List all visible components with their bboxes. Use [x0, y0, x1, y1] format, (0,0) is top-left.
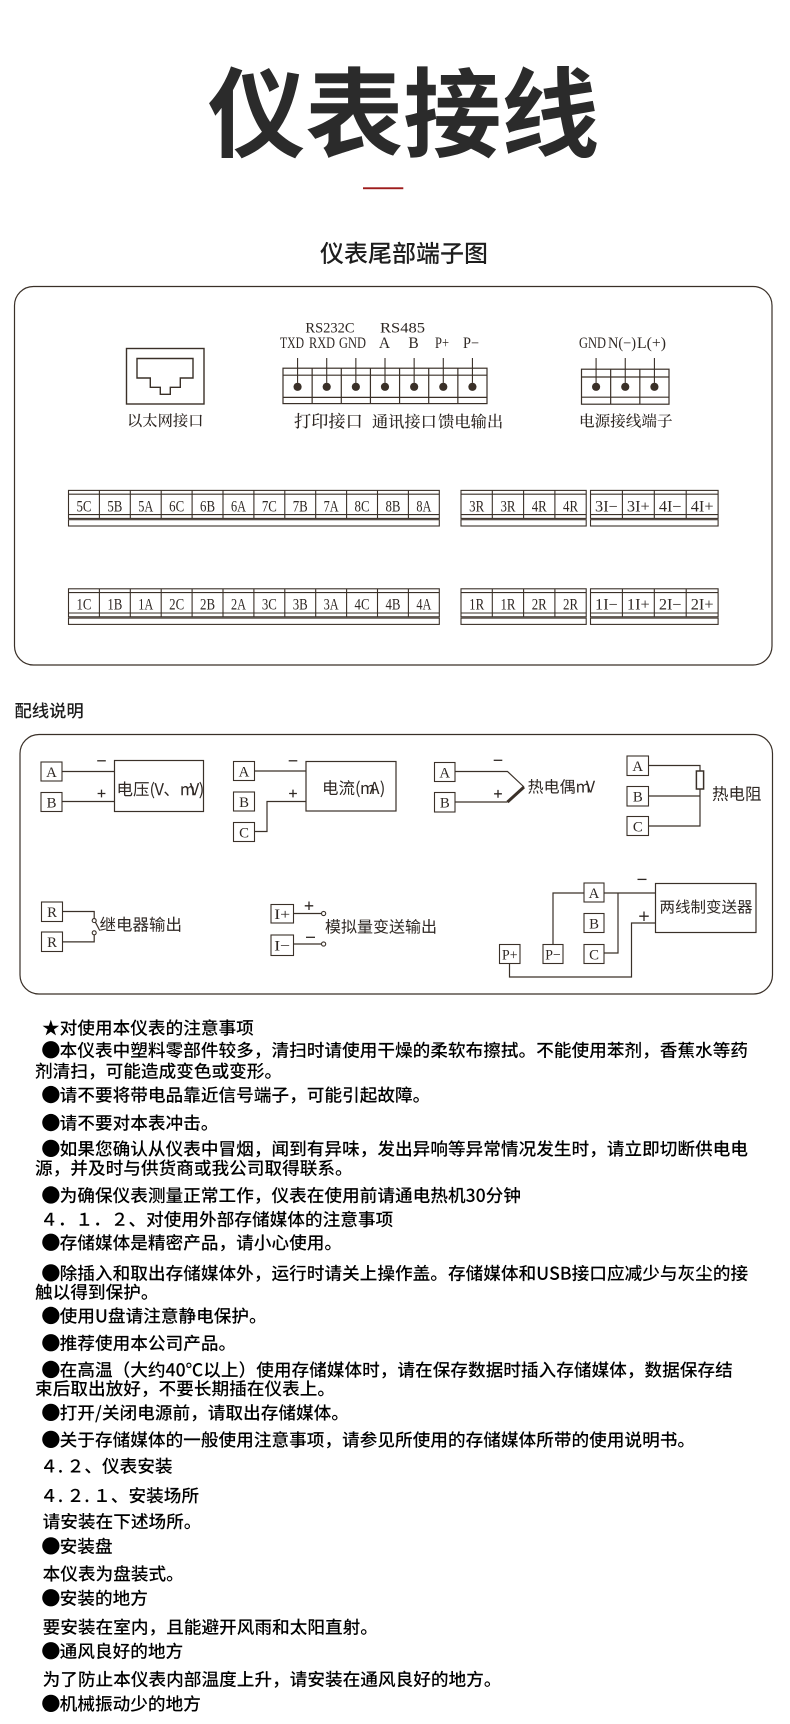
- svg-text:6B: 6B: [200, 498, 215, 515]
- svg-text:1R: 1R: [500, 597, 515, 614]
- svg-text:B: B: [589, 916, 599, 932]
- svg-text:3I−: 3I−: [595, 498, 618, 515]
- svg-text:6A: 6A: [231, 498, 246, 515]
- svg-text:A: A: [239, 764, 250, 780]
- svg-text:A: A: [439, 765, 450, 781]
- svg-text:2I−: 2I−: [659, 597, 682, 614]
- svg-text:A: A: [379, 335, 391, 352]
- svg-text:2A: 2A: [231, 597, 246, 614]
- svg-text:1A: 1A: [138, 597, 153, 614]
- svg-text:B: B: [633, 790, 643, 806]
- svg-text:6C: 6C: [169, 498, 184, 515]
- svg-text:B: B: [239, 795, 249, 811]
- svg-text:3R: 3R: [500, 498, 515, 515]
- svg-text:RXD: RXD: [309, 335, 335, 352]
- svg-text:8A: 8A: [416, 498, 431, 515]
- svg-text:4I+: 4I+: [691, 498, 714, 515]
- svg-text:7C: 7C: [262, 498, 277, 515]
- svg-text:A: A: [632, 759, 643, 775]
- svg-text:A: A: [589, 886, 600, 902]
- svg-text:B: B: [47, 795, 57, 811]
- svg-text:2R: 2R: [563, 597, 578, 614]
- svg-text:R: R: [47, 935, 57, 951]
- svg-text:3A: 3A: [324, 597, 339, 614]
- svg-text:1B: 1B: [107, 597, 122, 614]
- svg-text:GND: GND: [579, 335, 606, 352]
- svg-text:8B: 8B: [385, 498, 400, 515]
- svg-text:4R: 4R: [563, 498, 578, 515]
- svg-text:8C: 8C: [355, 498, 370, 515]
- svg-text:A: A: [46, 765, 57, 781]
- svg-text:5A: 5A: [138, 498, 153, 515]
- svg-text:3I+: 3I+: [627, 498, 650, 515]
- svg-text:4A: 4A: [416, 597, 431, 614]
- svg-text:5C: 5C: [76, 498, 91, 515]
- svg-text:R: R: [47, 905, 57, 921]
- svg-text:1I+: 1I+: [627, 597, 650, 614]
- svg-text:L(+): L(+): [637, 335, 666, 352]
- svg-text:3R: 3R: [469, 498, 484, 515]
- svg-text:1C: 1C: [76, 597, 91, 614]
- svg-text:P−: P−: [463, 335, 479, 352]
- svg-text:I+: I+: [274, 907, 290, 923]
- svg-text:N(−): N(−): [608, 335, 636, 352]
- svg-text:P+: P+: [502, 947, 518, 963]
- svg-text:7A: 7A: [324, 498, 339, 515]
- svg-text:B: B: [408, 335, 418, 352]
- svg-text:P−: P−: [545, 947, 561, 963]
- svg-text:C: C: [239, 825, 249, 841]
- svg-text:B: B: [440, 796, 450, 812]
- svg-text:4C: 4C: [355, 597, 370, 614]
- svg-text:I−: I−: [274, 939, 290, 955]
- svg-text:2C: 2C: [169, 597, 184, 614]
- svg-text:1I−: 1I−: [595, 597, 618, 614]
- svg-text:C: C: [589, 947, 599, 963]
- svg-text:5B: 5B: [107, 498, 122, 515]
- svg-text:P+: P+: [435, 335, 449, 352]
- svg-text:4B: 4B: [385, 597, 400, 614]
- svg-text:1R: 1R: [469, 597, 484, 614]
- svg-text:2I+: 2I+: [691, 597, 714, 614]
- svg-text:4I−: 4I−: [659, 498, 682, 515]
- svg-text:3B: 3B: [293, 597, 308, 614]
- svg-text:C: C: [633, 819, 643, 835]
- svg-text:2B: 2B: [200, 597, 215, 614]
- svg-text:2R: 2R: [532, 597, 547, 614]
- svg-text:7B: 7B: [293, 498, 308, 515]
- svg-text:4R: 4R: [532, 498, 547, 515]
- svg-text:3C: 3C: [262, 597, 277, 614]
- svg-text:TXD: TXD: [280, 335, 304, 352]
- svg-text:GND: GND: [339, 335, 366, 352]
